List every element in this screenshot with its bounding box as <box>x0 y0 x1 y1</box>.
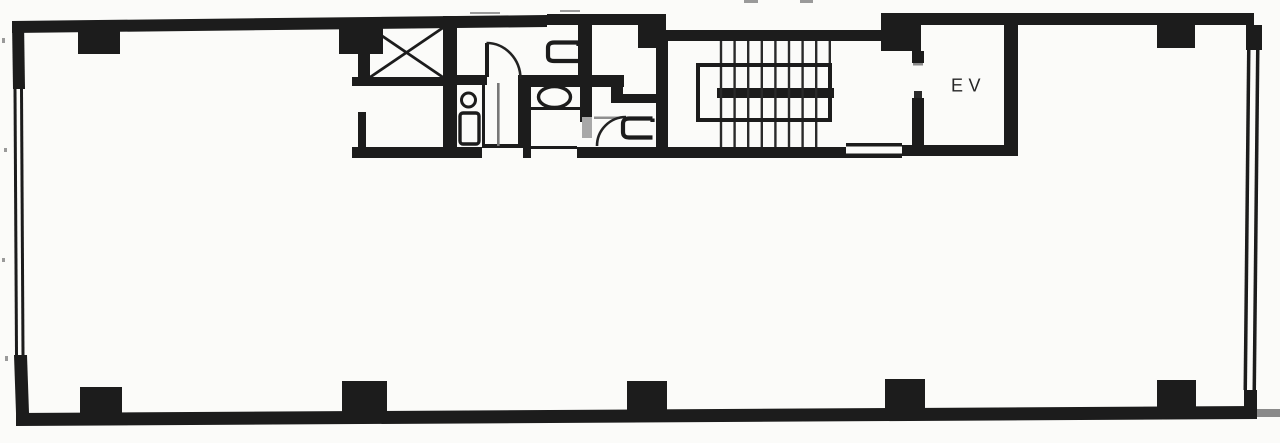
svg-text:EV: EV <box>951 76 986 96</box>
